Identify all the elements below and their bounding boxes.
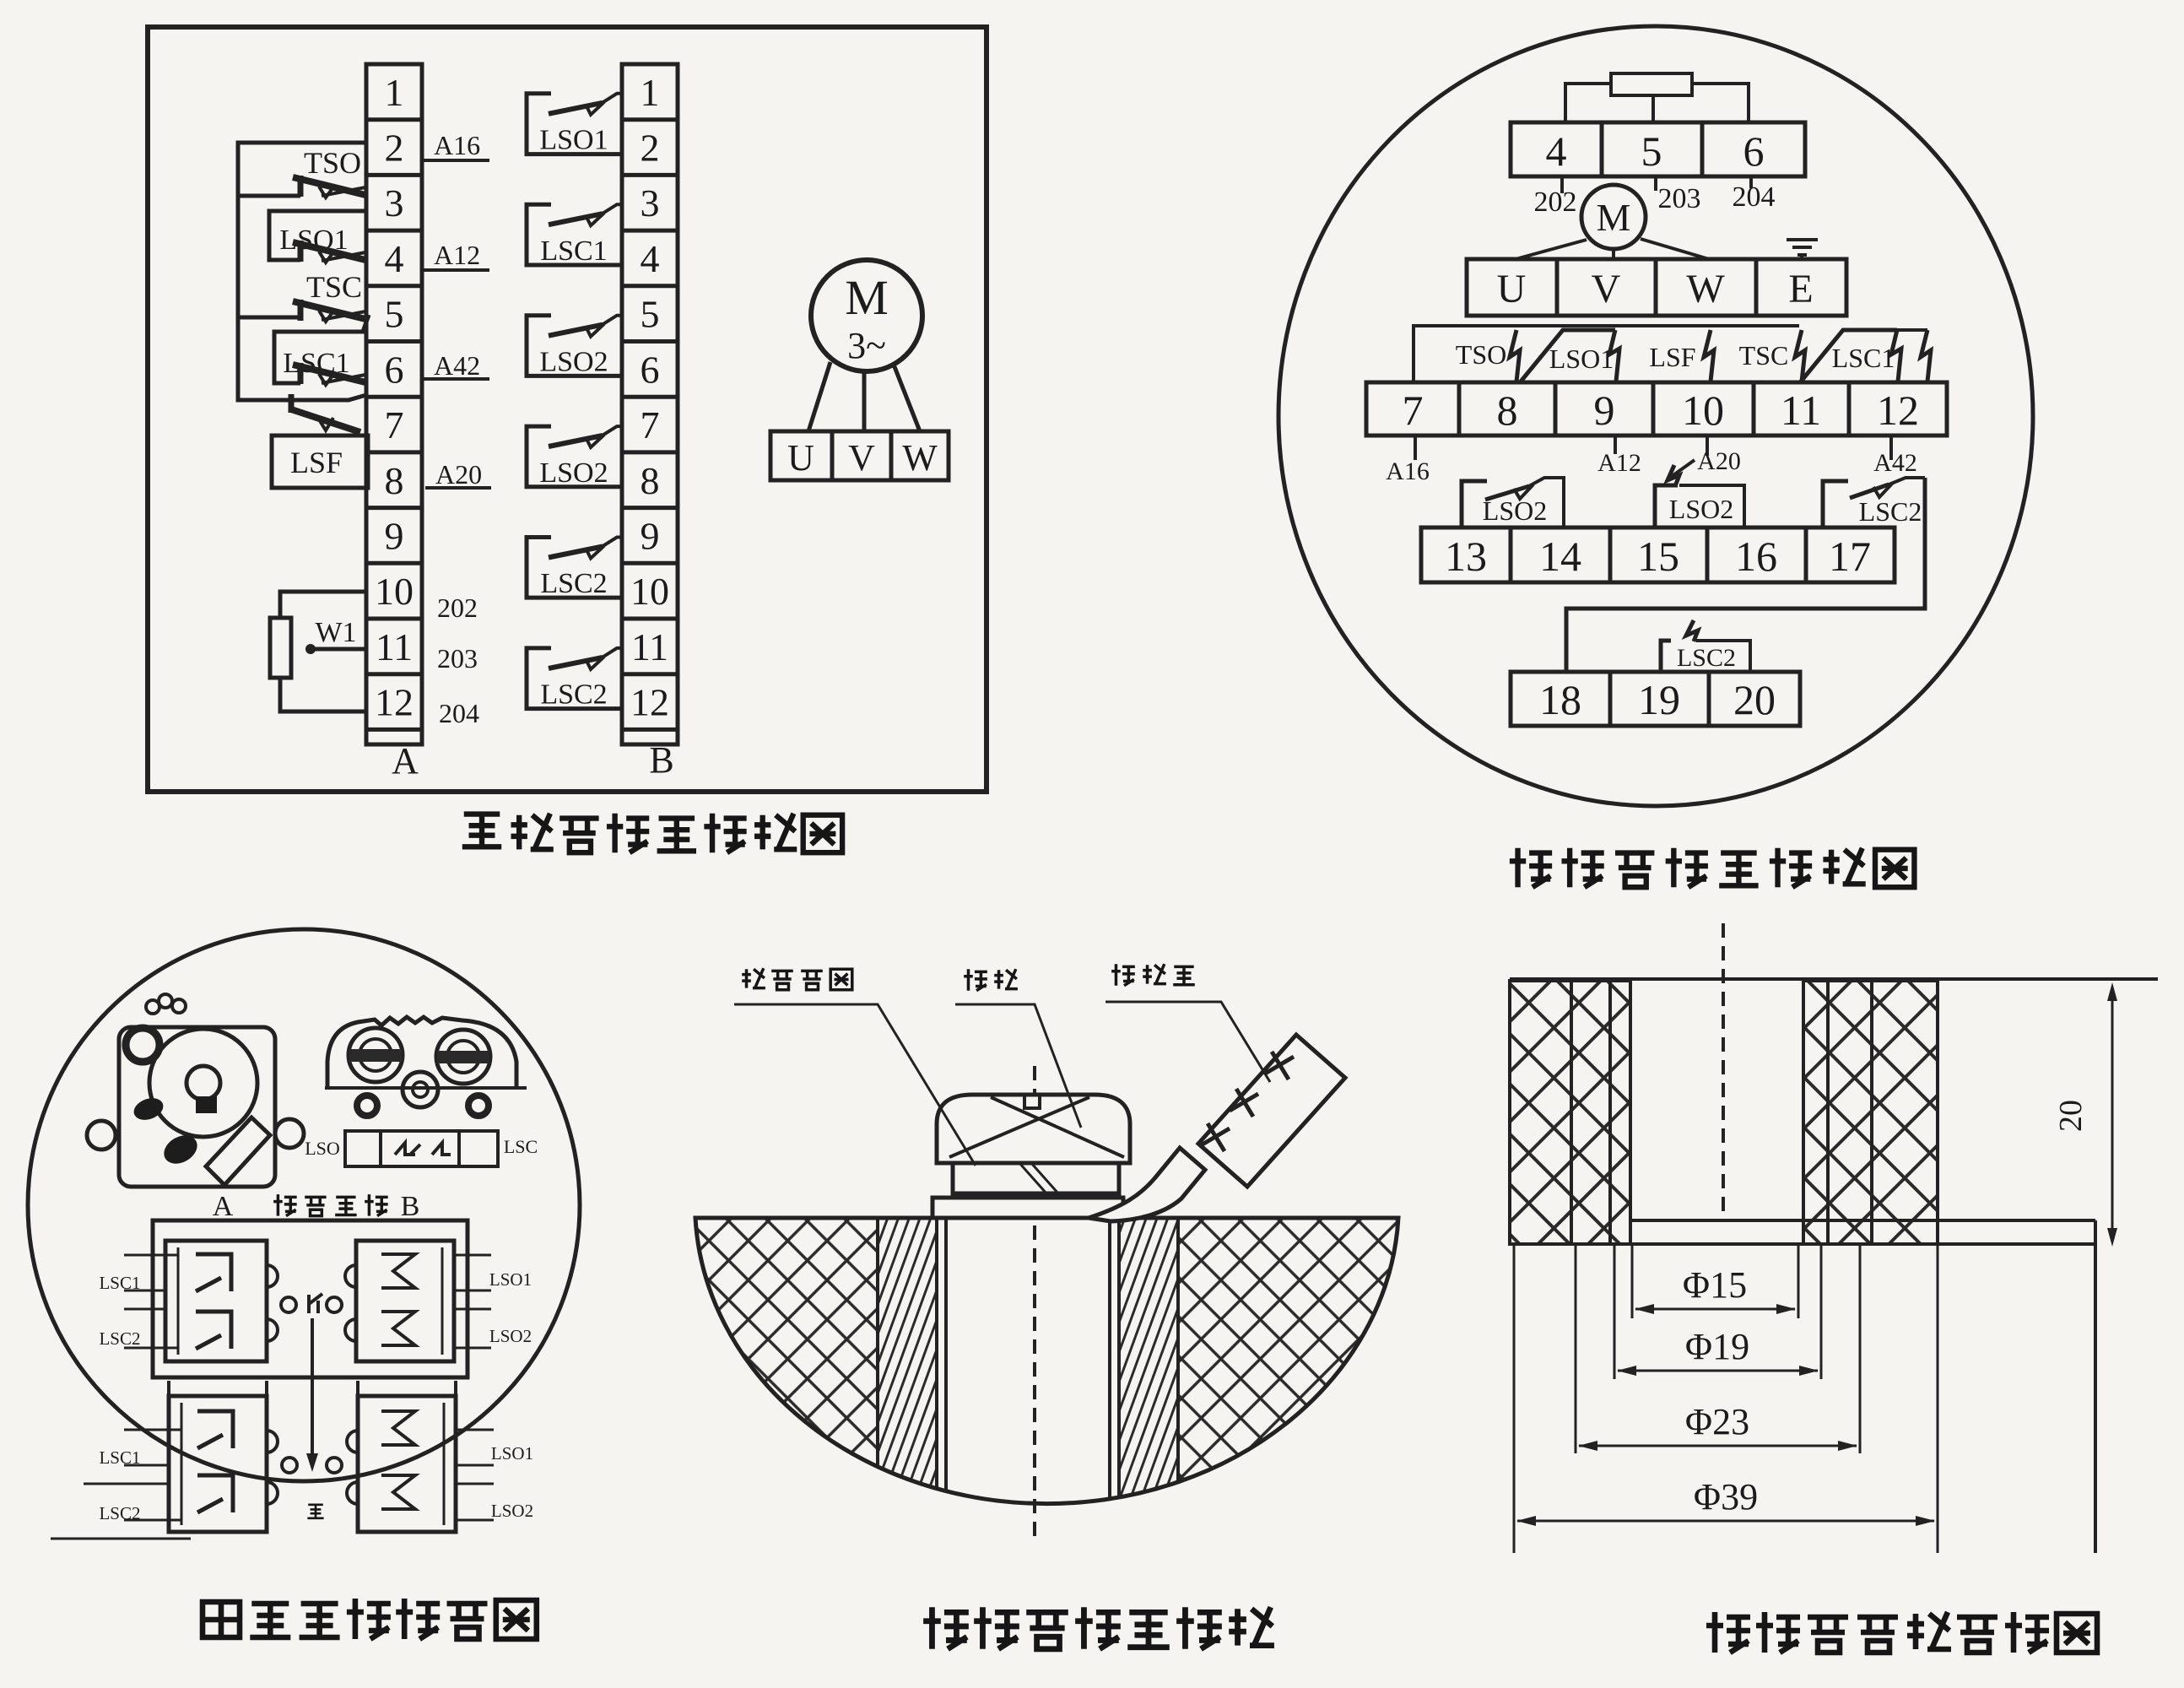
- svg-text:19: 19: [1638, 676, 1680, 723]
- svg-text:2: 2: [385, 127, 404, 170]
- svg-text:TSO: TSO: [1456, 339, 1506, 370]
- svg-text:7: 7: [385, 403, 404, 446]
- svg-text:LSO2: LSO2: [491, 1501, 533, 1521]
- svg-text:LSO: LSO: [305, 1138, 340, 1159]
- svg-text:9: 9: [385, 515, 404, 558]
- svg-text:A20: A20: [1697, 447, 1741, 475]
- svg-text:11: 11: [376, 625, 413, 668]
- svg-text:M: M: [1597, 196, 1631, 239]
- svg-text:LSC: LSC: [504, 1136, 538, 1157]
- svg-text:16: 16: [1735, 533, 1777, 580]
- svg-text:5: 5: [385, 293, 404, 336]
- svg-text:U: U: [1497, 267, 1527, 311]
- svg-text:3: 3: [641, 181, 660, 225]
- svg-text:15: 15: [1637, 533, 1679, 580]
- svg-text:3: 3: [385, 181, 404, 225]
- svg-text:A12: A12: [1597, 449, 1641, 477]
- svg-text:4: 4: [641, 237, 660, 280]
- svg-text:8: 8: [1497, 387, 1518, 434]
- svg-text:11: 11: [1781, 387, 1821, 434]
- svg-text:14: 14: [1539, 533, 1581, 580]
- svg-text:10: 10: [375, 570, 414, 613]
- svg-text:LSC1: LSC1: [540, 235, 607, 267]
- svg-text:6: 6: [641, 348, 660, 391]
- svg-text:A20: A20: [435, 459, 482, 490]
- svg-text:Φ39: Φ39: [1694, 1476, 1758, 1518]
- svg-text:LSO1: LSO1: [539, 125, 608, 156]
- svg-text:10: 10: [630, 570, 669, 613]
- svg-text:204: 204: [1733, 181, 1776, 213]
- svg-text:203: 203: [1658, 183, 1701, 214]
- svg-text:Φ23: Φ23: [1685, 1401, 1749, 1442]
- svg-text:A16: A16: [1386, 457, 1430, 485]
- svg-text:1: 1: [641, 71, 660, 114]
- svg-text:1: 1: [385, 71, 404, 114]
- svg-text:12: 12: [375, 681, 414, 724]
- svg-text:A42: A42: [434, 350, 480, 381]
- svg-text:B: B: [649, 739, 673, 781]
- svg-text:11: 11: [631, 625, 668, 668]
- svg-text:20: 20: [1733, 676, 1776, 723]
- svg-text:10: 10: [1682, 387, 1724, 434]
- svg-text:A12: A12: [434, 240, 480, 270]
- svg-text:LSO2: LSO2: [1669, 494, 1733, 524]
- svg-text:203: 203: [437, 643, 478, 674]
- svg-text:9: 9: [1594, 387, 1615, 434]
- svg-text:2: 2: [641, 127, 660, 170]
- svg-text:5: 5: [641, 293, 660, 336]
- svg-text:V: V: [1592, 267, 1621, 311]
- svg-text:LSC1: LSC1: [99, 1447, 140, 1468]
- svg-text:LSC1: LSC1: [1832, 343, 1895, 373]
- svg-text:LSO1: LSO1: [1549, 344, 1614, 374]
- svg-text:20: 20: [2053, 1100, 2089, 1132]
- svg-text:202: 202: [1534, 187, 1577, 218]
- svg-text:V: V: [848, 437, 875, 479]
- svg-text:E: E: [1788, 267, 1813, 311]
- svg-text:LSO2: LSO2: [539, 457, 608, 489]
- svg-text:TSO: TSO: [304, 146, 361, 180]
- svg-text:LSC1: LSC1: [99, 1273, 140, 1293]
- svg-text:12: 12: [630, 681, 669, 724]
- svg-text:A: A: [213, 1191, 234, 1222]
- svg-text:W: W: [902, 437, 938, 479]
- svg-text:3~: 3~: [847, 325, 886, 366]
- svg-text:LSC2: LSC2: [99, 1328, 140, 1349]
- svg-text:A: A: [392, 740, 419, 782]
- svg-text:17: 17: [1829, 533, 1871, 580]
- svg-text:LSO1: LSO1: [491, 1443, 533, 1463]
- svg-text:TSC: TSC: [306, 270, 362, 304]
- svg-text:202: 202: [437, 592, 478, 623]
- svg-text:LSO2: LSO2: [489, 1326, 532, 1346]
- svg-text:LSC2: LSC2: [540, 568, 607, 599]
- svg-text:LSF: LSF: [1649, 342, 1695, 372]
- svg-text:LSC2: LSC2: [1677, 644, 1736, 672]
- svg-text:LSO2: LSO2: [539, 346, 608, 377]
- svg-text:A16: A16: [434, 130, 480, 160]
- svg-text:8: 8: [641, 459, 660, 502]
- svg-text:204: 204: [439, 698, 479, 728]
- svg-text:4: 4: [1546, 127, 1567, 175]
- svg-text:6: 6: [385, 348, 404, 391]
- svg-text:Φ19: Φ19: [1685, 1326, 1749, 1367]
- svg-text:12: 12: [1877, 387, 1919, 434]
- svg-text:7: 7: [1403, 387, 1424, 434]
- svg-text:LSC2: LSC2: [99, 1503, 140, 1523]
- svg-text:W: W: [1686, 267, 1725, 311]
- svg-text:LSO1: LSO1: [489, 1269, 532, 1290]
- svg-text:LSC2: LSC2: [540, 679, 607, 711]
- svg-text:7: 7: [641, 403, 660, 446]
- svg-text:6: 6: [1743, 127, 1765, 175]
- svg-text:9: 9: [641, 515, 660, 558]
- svg-text:B: B: [401, 1191, 420, 1222]
- svg-text:4: 4: [385, 237, 404, 280]
- svg-text:18: 18: [1539, 676, 1581, 723]
- svg-text:13: 13: [1445, 533, 1487, 580]
- svg-text:LSC2: LSC2: [1859, 496, 1922, 527]
- svg-text:A42: A42: [1873, 449, 1917, 477]
- svg-text:5: 5: [1641, 127, 1662, 175]
- svg-text:Φ15: Φ15: [1683, 1264, 1747, 1306]
- svg-text:U: U: [787, 437, 814, 479]
- svg-text:W1: W1: [315, 617, 356, 648]
- svg-text:8: 8: [385, 459, 404, 502]
- svg-text:LSF: LSF: [290, 446, 343, 479]
- svg-text:LSO2: LSO2: [1483, 495, 1547, 526]
- svg-text:TSC: TSC: [1739, 340, 1789, 371]
- svg-text:M: M: [845, 270, 889, 325]
